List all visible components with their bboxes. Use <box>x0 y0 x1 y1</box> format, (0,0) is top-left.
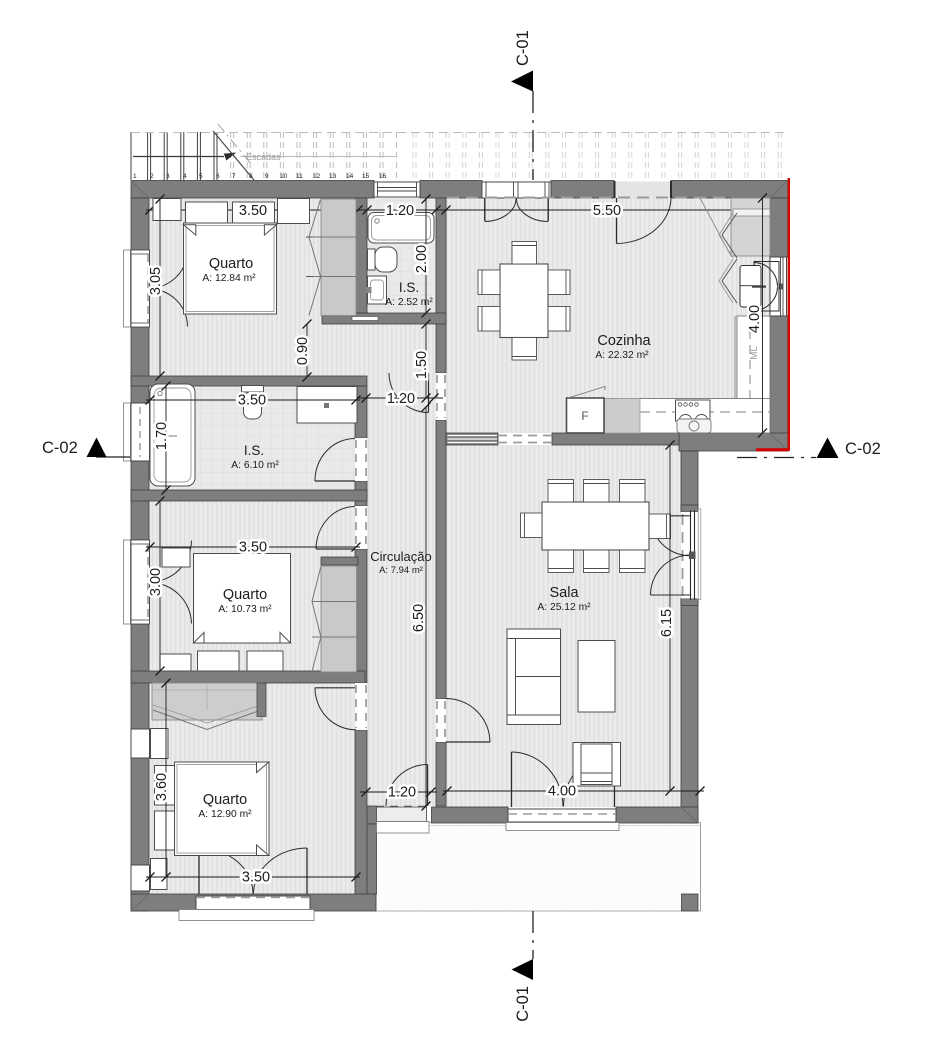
svg-text:A: 7.94 m²: A: 7.94 m² <box>379 565 423 576</box>
svg-text:Cozinha: Cozinha <box>597 333 651 349</box>
svg-text:C-01: C-01 <box>514 30 532 66</box>
svg-text:1: 1 <box>133 173 137 180</box>
svg-text:16: 16 <box>379 173 387 180</box>
svg-text:2: 2 <box>150 173 154 180</box>
svg-text:1.20: 1.20 <box>388 785 416 801</box>
svg-text:C-01: C-01 <box>514 986 532 1022</box>
svg-text:5.50: 5.50 <box>593 203 621 219</box>
svg-text:7: 7 <box>232 173 236 180</box>
svg-text:2.00: 2.00 <box>414 245 430 273</box>
svg-text:C-02: C-02 <box>42 439 78 457</box>
svg-text:1.50: 1.50 <box>414 351 430 379</box>
svg-text:A: 22.32 m²: A: 22.32 m² <box>595 350 649 361</box>
svg-text:1.20: 1.20 <box>387 391 415 407</box>
svg-text:I.S.: I.S. <box>399 280 419 295</box>
svg-text:10: 10 <box>280 173 288 180</box>
svg-text:3.60: 3.60 <box>154 773 170 801</box>
svg-text:A: 2.52 m²: A: 2.52 m² <box>385 297 433 308</box>
svg-text:Quarto: Quarto <box>203 792 247 808</box>
svg-text:Escadas: Escadas <box>246 152 281 162</box>
svg-text:14: 14 <box>346 173 354 180</box>
svg-text:A: 6.10 m²: A: 6.10 m² <box>231 460 279 471</box>
svg-text:3.00: 3.00 <box>148 568 164 596</box>
svg-text:5: 5 <box>199 173 203 180</box>
svg-text:6.15: 6.15 <box>659 609 675 637</box>
svg-text:1.70: 1.70 <box>154 422 170 450</box>
svg-text:3.05: 3.05 <box>148 267 164 295</box>
svg-text:1.20: 1.20 <box>386 203 414 219</box>
svg-text:12: 12 <box>313 173 321 180</box>
svg-text:3: 3 <box>166 173 170 180</box>
svg-text:Circulação: Circulação <box>370 549 431 564</box>
svg-text:Sala: Sala <box>549 585 579 601</box>
svg-text:4.00: 4.00 <box>548 784 576 800</box>
svg-text:F: F <box>581 409 588 423</box>
svg-text:6: 6 <box>216 173 220 180</box>
svg-text:A: 12.90 m²: A: 12.90 m² <box>198 809 252 820</box>
svg-text:6.50: 6.50 <box>411 604 427 632</box>
svg-text:3.50: 3.50 <box>239 540 267 556</box>
svg-text:15: 15 <box>362 173 370 180</box>
svg-text:11: 11 <box>296 173 303 180</box>
svg-text:3.50: 3.50 <box>242 870 270 886</box>
svg-text:3.50: 3.50 <box>238 393 266 409</box>
svg-text:A: 12.84 m²: A: 12.84 m² <box>202 273 256 284</box>
svg-text:4.00: 4.00 <box>747 305 763 333</box>
svg-text:3.50: 3.50 <box>239 203 267 219</box>
svg-text:0.90: 0.90 <box>295 337 311 365</box>
svg-text:C-02: C-02 <box>845 440 881 458</box>
svg-text:8: 8 <box>249 173 253 180</box>
svg-text:4: 4 <box>183 173 187 180</box>
svg-text:ML: ML <box>749 346 760 360</box>
svg-text:A: 25.12 m²: A: 25.12 m² <box>537 602 591 613</box>
svg-text:A: 10.73 m²: A: 10.73 m² <box>218 604 272 615</box>
svg-text:Quarto: Quarto <box>209 256 253 272</box>
svg-text:I.S.: I.S. <box>244 443 264 458</box>
svg-text:Quarto: Quarto <box>223 587 267 603</box>
svg-text:9: 9 <box>265 173 269 180</box>
svg-text:13: 13 <box>329 173 337 180</box>
